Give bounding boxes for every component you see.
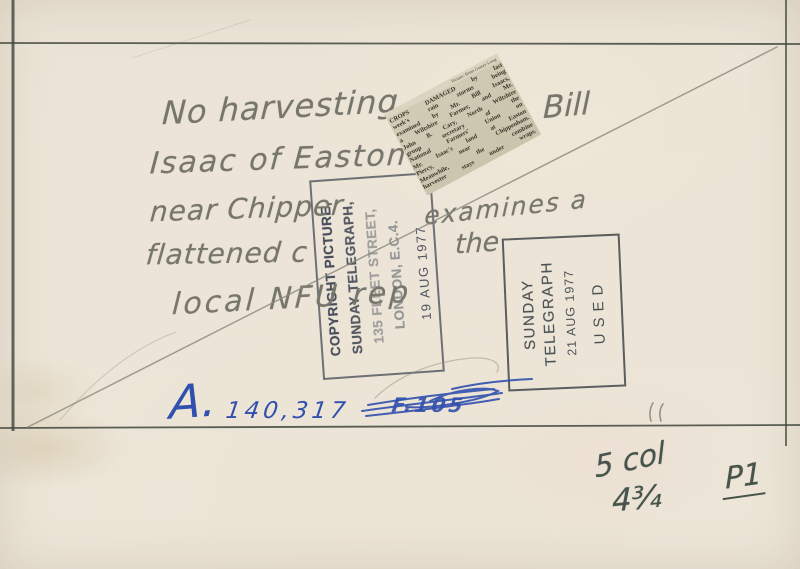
page-mark: P1 <box>722 456 766 500</box>
faint-corner-stroke <box>132 20 250 58</box>
handwriting-near-chippenham: near Chipper <box>149 189 345 229</box>
tick-marks <box>650 403 663 421</box>
used-stamp: SUNDAY TELEGRAPH 21 AUG 1977 USED <box>502 233 627 391</box>
blue-ref-letter: A. <box>168 372 219 430</box>
width-size-mark: 4¾ <box>612 478 662 519</box>
top-rule-line <box>0 43 800 44</box>
handwriting-isaac-of-easton: Isaac of Easton <box>149 137 409 181</box>
used-stamp-status: USED <box>587 236 611 386</box>
used-stamp-text: SUNDAY TELEGRAPH 21 AUG 1977 USED <box>516 236 611 389</box>
crossed-out-code: F.105 <box>390 393 467 417</box>
handwriting-bill: Bill <box>543 86 591 126</box>
used-stamp-date: 21 AUG 1977 <box>558 237 582 387</box>
faint-pencil-flourish <box>60 332 176 420</box>
bottom-rule-line <box>0 425 800 428</box>
handwriting-flattened-crop: flattened c <box>145 236 310 272</box>
blue-ref-number: 140,317 <box>224 398 351 424</box>
handwriting-the: the <box>455 226 500 260</box>
photo-back-paper: COPYRIGHT PICTURE, SUNDAY TELEGRAPH, 135… <box>0 0 800 569</box>
handwriting-no-harvesting: No harvesting <box>161 82 400 133</box>
handwriting-examines-a: examines a <box>424 184 588 230</box>
